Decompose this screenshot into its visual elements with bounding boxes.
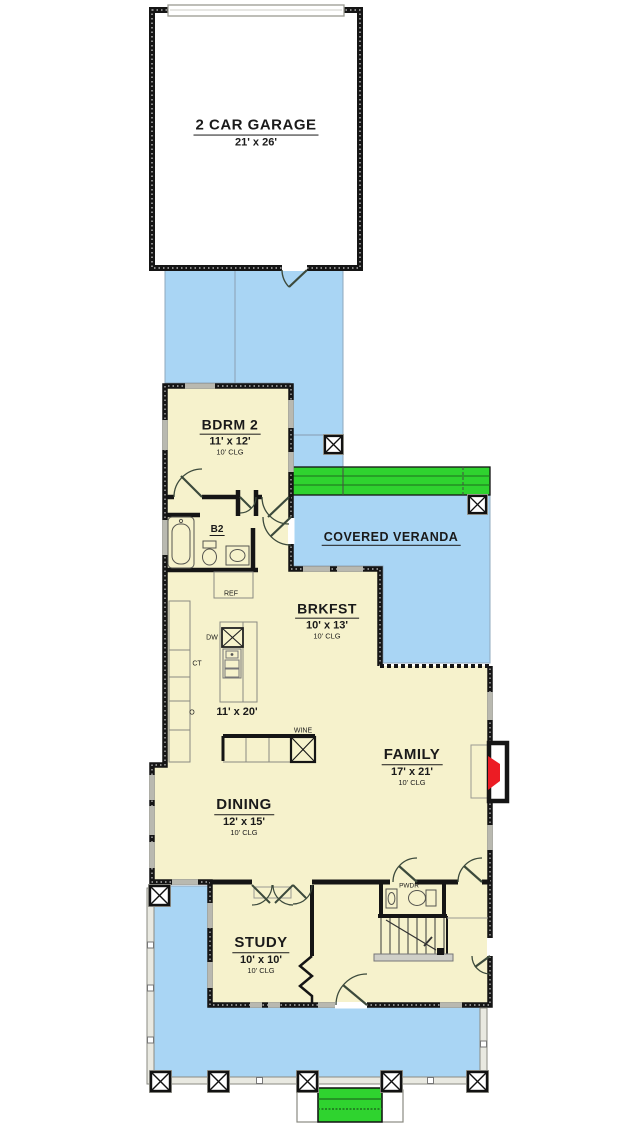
front-steps: [297, 1088, 403, 1122]
dw-label: DW: [206, 635, 218, 642]
study-name: STUDY: [232, 934, 289, 953]
room-label-brkfst: BRKFST 10' x 13' 10' CLG: [295, 601, 359, 642]
veranda-name: COVERED VERANDA: [322, 530, 461, 546]
garage-dims: 21' x 26': [193, 137, 318, 150]
room-label-bdrm2: BDRM 2 11' x 12' 10' CLG: [200, 417, 261, 458]
room-label-garage: 2 CAR GARAGE 21' x 26': [193, 117, 318, 150]
room-label-kitchen: 11' x 20': [216, 705, 257, 719]
wine-label: WINE: [294, 728, 312, 735]
bath2-label: B2: [210, 524, 225, 536]
bdrm2-name: BDRM 2: [200, 417, 261, 435]
brkfst-name: BRKFST: [295, 601, 359, 619]
powder-label: PWDR: [399, 883, 419, 890]
floor-plan-canvas: [0, 0, 625, 1128]
ct-label: CT: [192, 661, 201, 668]
room-label-family: FAMILY 17' x 21' 10' CLG: [382, 746, 443, 788]
garage-name: 2 CAR GARAGE: [193, 117, 318, 136]
family-name: FAMILY: [382, 746, 443, 765]
room-label-veranda: COVERED VERANDA: [322, 528, 461, 546]
veranda-steps: [292, 467, 490, 495]
ref-label: REF: [224, 591, 238, 598]
garage-service-door-opening: [282, 261, 307, 271]
oven-label: O: [189, 710, 194, 717]
room-label-study: STUDY 10' x 10' 10' CLG: [232, 934, 289, 976]
floor-plan: 2 CAR GARAGE 21' x 26' BDRM 2 11' x 12' …: [0, 0, 625, 1128]
kitchen-dims: 11' x 20': [216, 706, 257, 719]
room-label-dining: DINING 12' x 15' 10' CLG: [214, 796, 274, 838]
dining-name: DINING: [214, 796, 274, 815]
